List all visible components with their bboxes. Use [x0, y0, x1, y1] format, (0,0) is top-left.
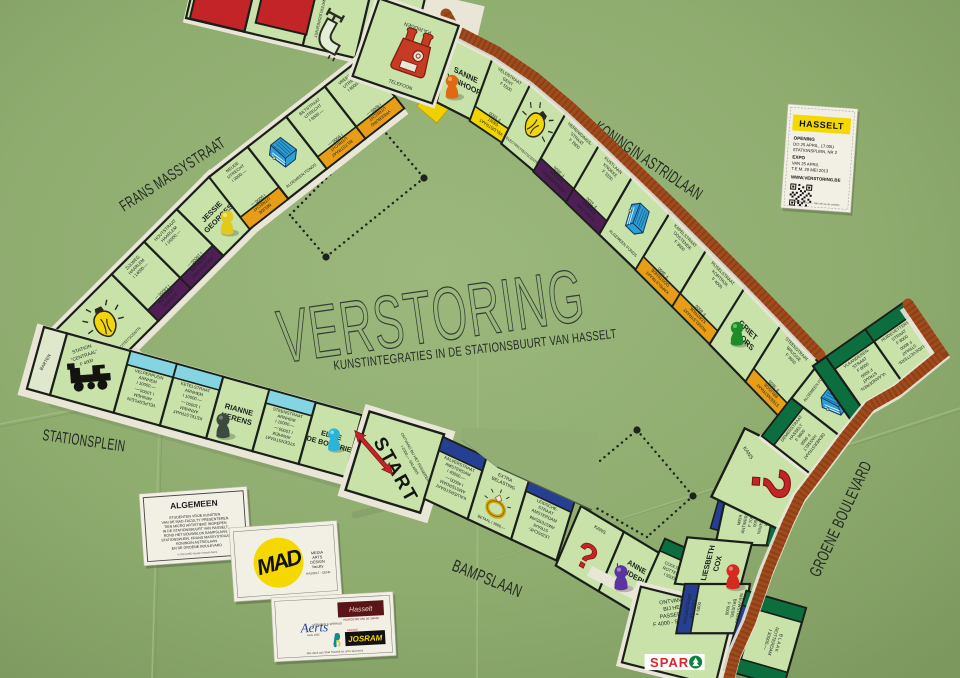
- svg-text:Hasselt: Hasselt: [349, 606, 374, 614]
- svg-text:EXPO: EXPO: [792, 154, 806, 160]
- svg-text:faculty: faculty: [312, 564, 323, 569]
- svg-text:sinds 1925: sinds 1925: [307, 632, 320, 637]
- svg-text:JOSRAM: JOSRAM: [348, 633, 383, 644]
- svg-text:SPAR: SPAR: [650, 655, 689, 670]
- svg-text:GARAGE: GARAGE: [347, 627, 359, 632]
